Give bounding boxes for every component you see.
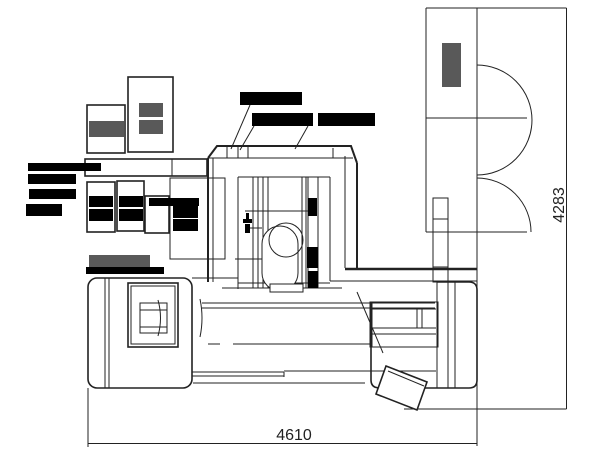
redacted-callouts-top [231, 92, 375, 150]
redacted-label [26, 204, 62, 216]
carriage-box [140, 303, 167, 333]
redacted-label [149, 198, 199, 206]
cabinet-panel-right [170, 178, 225, 259]
gray-label-strip [89, 255, 150, 268]
chip-chute [376, 366, 427, 410]
width-dimension-label: 4610 [276, 427, 312, 444]
spindle-stadium [262, 226, 298, 291]
chamber-base-block [270, 284, 303, 292]
redacted-label [28, 163, 101, 171]
bed-arc [200, 299, 202, 337]
redacted-label [119, 209, 143, 221]
machine-layout-drawing: 4610 4283 [0, 0, 600, 450]
panel-gray-block-1 [139, 103, 163, 117]
small-fixture-symbol [243, 213, 252, 233]
machine-body-right [357, 282, 477, 388]
panel-wide-box [85, 159, 207, 176]
cabinet-door-arcs [477, 65, 532, 232]
redacted-label [29, 189, 76, 199]
redacted-label [318, 113, 375, 126]
redacted-label [173, 206, 198, 218]
height-dimension-label: 4283 [551, 187, 568, 223]
electrical-cabinets [87, 178, 225, 259]
leader-line [231, 105, 250, 149]
cabinet-gray-panel [442, 43, 461, 87]
redacted-label [252, 113, 313, 126]
redacted-label [28, 174, 76, 184]
door-swing-arc-lower [477, 178, 531, 232]
operator-panels [85, 77, 207, 176]
redacted-label [86, 267, 164, 274]
dimension-annotations: 4610 4283 [88, 8, 568, 447]
enclosure-cover-top [208, 146, 357, 163]
redacted-label [173, 219, 198, 231]
machine-body-left [88, 278, 192, 388]
work-chamber [222, 177, 342, 292]
redacted-label [240, 92, 302, 105]
panel-gray-block-2 [139, 120, 163, 134]
turret-tool-marks [307, 198, 318, 288]
tailstock-detail [370, 302, 438, 347]
panel-gray-bar [89, 121, 124, 137]
body-inner-box [128, 283, 178, 347]
control-cabinet [426, 8, 567, 446]
redacted-label [89, 209, 113, 221]
redacted-label [89, 196, 113, 207]
body-arc [158, 300, 161, 336]
cad-canvas: 4610 4283 [0, 0, 600, 450]
chute-outline [376, 366, 427, 410]
redacted-label [119, 196, 143, 207]
door-swing-arc-upper [477, 65, 532, 175]
